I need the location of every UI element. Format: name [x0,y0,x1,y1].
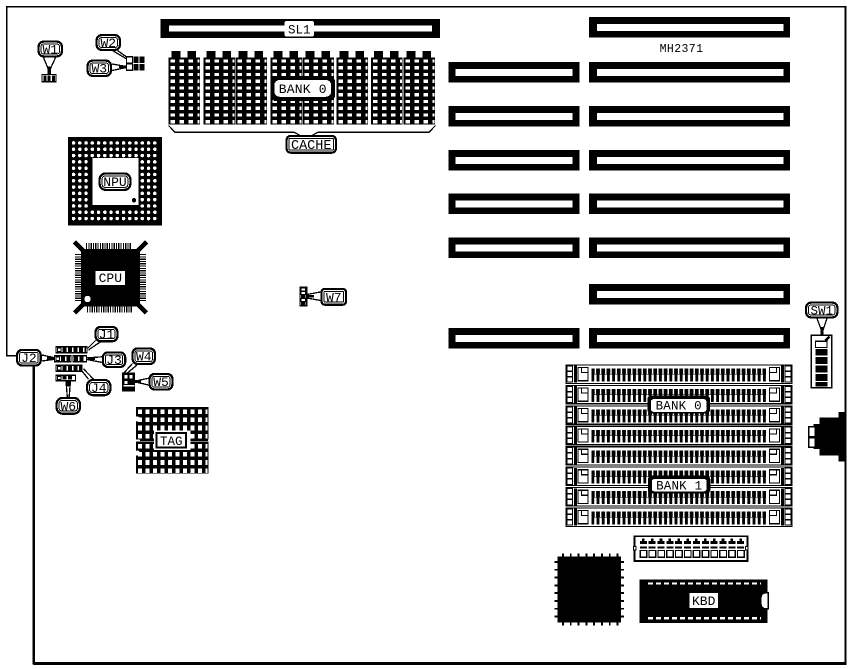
svg-text:BANK 0: BANK 0 [279,82,327,97]
svg-text:SW1: SW1 [810,304,833,318]
svg-text:J2: J2 [21,351,37,366]
svg-text:W4: W4 [136,350,152,365]
svg-text:KBD: KBD [692,594,716,609]
svg-text:BANK 0: BANK 0 [656,400,702,414]
svg-text:CACHE: CACHE [291,139,332,154]
svg-text:SL1: SL1 [288,23,311,37]
svg-text:CPU: CPU [99,271,122,286]
svg-text:W6: W6 [60,399,76,414]
svg-text:NPU: NPU [103,175,126,190]
svg-text:W2: W2 [100,36,116,51]
svg-text:W7: W7 [326,290,342,305]
svg-text:BANK 1: BANK 1 [656,480,702,494]
svg-text:W1: W1 [42,42,58,57]
svg-text:W3: W3 [91,62,107,77]
svg-text:MH2371: MH2371 [660,43,704,56]
svg-text:TAG: TAG [160,435,183,449]
svg-text:J3: J3 [106,353,122,368]
svg-text:J4: J4 [91,381,107,396]
svg-text:W5: W5 [153,375,169,390]
svg-text:J1: J1 [99,328,115,343]
